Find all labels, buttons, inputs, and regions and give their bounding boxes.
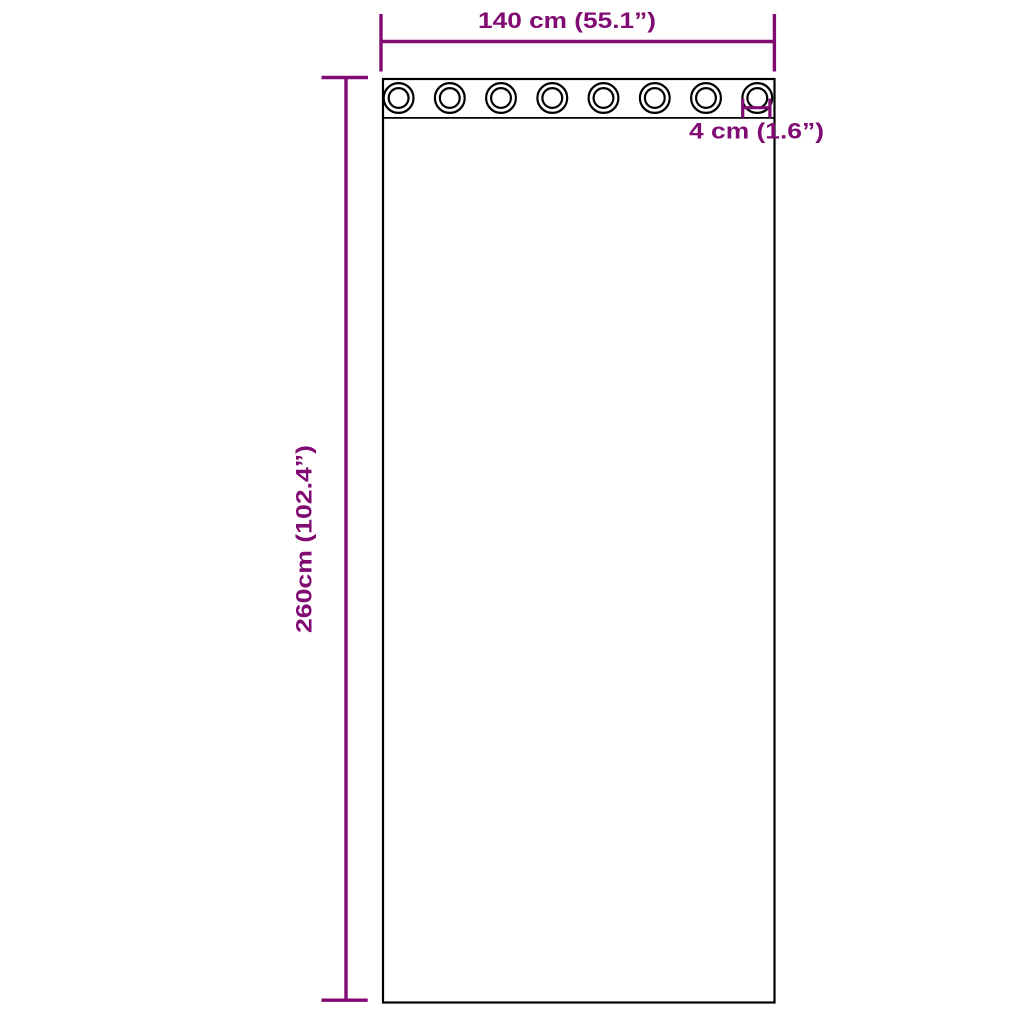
svg-text:4 cm (1.6”): 4 cm (1.6”) <box>689 118 824 143</box>
svg-text:260cm (102.4”): 260cm (102.4”) <box>292 445 317 633</box>
svg-text:140 cm (55.1”): 140 cm (55.1”) <box>478 8 656 33</box>
